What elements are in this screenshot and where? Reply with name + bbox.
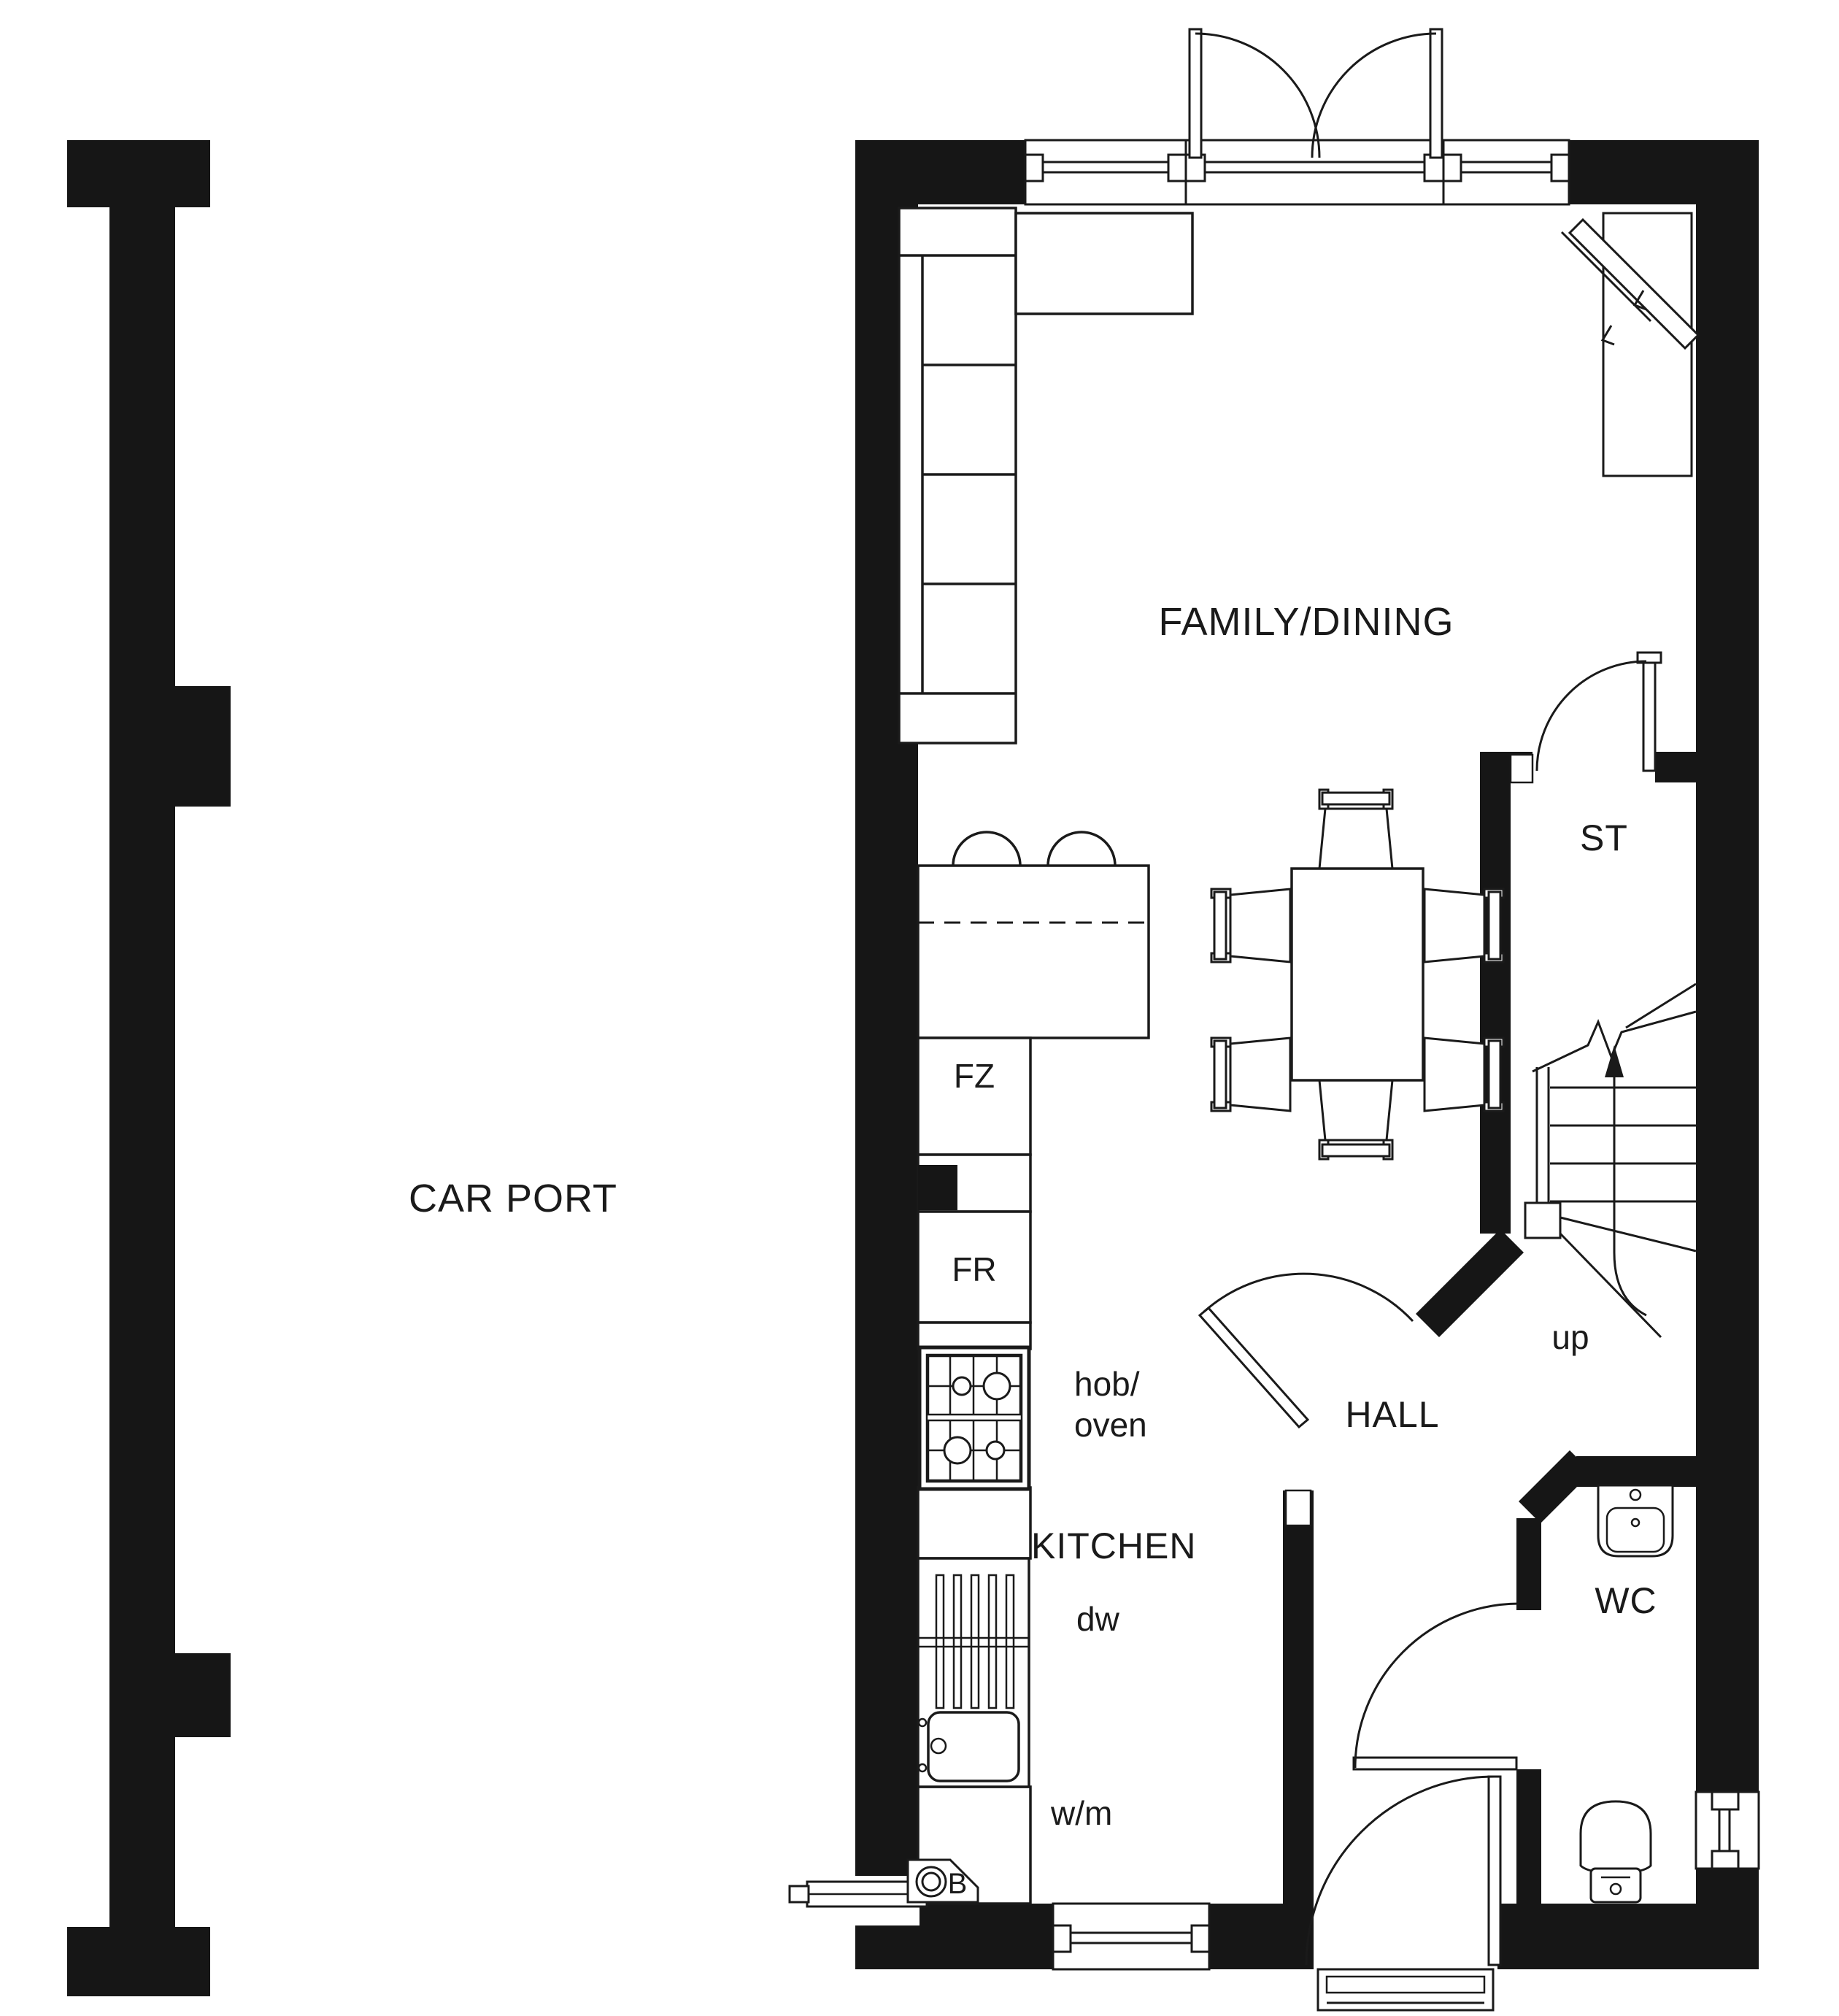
french-doors [1190,29,1442,158]
breakfast-bar [918,866,1149,1038]
stairs [1525,984,1696,1337]
counter-segment [918,1323,1030,1349]
burner [944,1437,971,1463]
wall-hall-angled [1416,1229,1524,1337]
labels: CAR PORT FAMILY/DINING KITCHEN HALL ST W… [409,600,1657,1900]
wall-wc-lower [1516,1769,1541,1904]
store-door [1537,653,1661,771]
toilet-bowl [1581,1801,1651,1873]
door-stop-hall [1286,1490,1311,1526]
stair-up-arrow-line [1614,1070,1646,1315]
wc-basin-inner [1607,1508,1664,1552]
sofa [899,208,1192,743]
wall-kitchen-pier-overlay [918,1165,957,1210]
sink-tap [919,1764,926,1771]
bar-stool [1048,832,1115,866]
desk [1562,213,1698,476]
dining-chair-bottom [1319,1080,1392,1159]
counter-segment [918,1488,1030,1558]
front-door [1306,1777,1500,2010]
dining-chair-top [1319,790,1392,869]
dining-chair-right-2 [1424,1038,1503,1111]
label-dishwasher: dw [1076,1600,1120,1638]
sink-tap [931,1739,946,1753]
hall-door-leaf [1200,1308,1308,1427]
door-stop-store [1511,755,1532,782]
hall-door-swing [1204,1274,1413,1321]
dining-table [1292,869,1423,1080]
front-door-swing [1306,1777,1495,1965]
freezer-unit [918,1038,1030,1155]
window-kitchen-bottom [1053,1904,1209,1969]
burner [984,1373,1010,1399]
wc-door [1354,1604,1519,1769]
label-boiler: B [948,1868,968,1900]
floor-plan-drawing: CAR PORT FAMILY/DINING KITCHEN HALL ST W… [0,0,1839,2016]
window-wc-right [1696,1792,1759,1869]
wall-wc-stub [1516,1518,1541,1610]
window-top-left [1025,140,1186,204]
stair-newel-post [1525,1203,1560,1238]
label-stairs-up: up [1551,1318,1589,1356]
french-door-leaf-right [1430,29,1442,158]
window-top-right [1443,140,1569,204]
wall-right-upper [1696,140,1759,1792]
wc-fixtures [1581,1485,1673,1902]
burner [987,1442,1004,1459]
room-label-car-port: CAR PORT [409,1177,617,1220]
label-hob-line2: oven [1074,1406,1147,1444]
wc-door-leaf [1354,1758,1516,1769]
dining-chair-left-2 [1211,1038,1290,1111]
room-label-family-dining: FAMILY/DINING [1158,600,1454,644]
room-label-store: ST [1580,817,1628,858]
floor-plan: CAR PORT FAMILY/DINING KITCHEN HALL ST W… [0,0,1839,2016]
french-door-opening [1186,140,1443,204]
dining-chair-left-1 [1211,889,1290,962]
french-door-leaf-left [1190,29,1201,158]
room-label-kitchen: KITCHEN [1031,1526,1196,1566]
sofa-chaise [1016,213,1192,314]
label-freezer: FZ [954,1057,995,1095]
label-fridge: FR [952,1250,996,1288]
sink-unit [918,1558,1029,1787]
front-door-leaf [1489,1777,1500,1965]
wall-right-lower [1696,1869,1759,1969]
wc-basin-tap [1632,1519,1639,1526]
label-hob-line1: hob/ [1074,1365,1140,1403]
burner [953,1377,971,1395]
boiler-dial-inner [922,1873,940,1890]
dining-chair-right-1 [1424,889,1503,962]
store-door-leaf [1643,660,1655,771]
carport-pier-lower [175,1653,231,1737]
wc-basin-tap [1630,1490,1641,1500]
wall-dining-stairs [1480,782,1511,1234]
toilet-flush-button [1611,1884,1621,1894]
carport-wall-bottom-cap [67,1927,210,1996]
hob-oven-unit [919,1347,1029,1489]
wc-door-swing [1355,1604,1519,1768]
label-washing-machine: w/m [1050,1794,1112,1832]
bar-stool [953,832,1020,866]
dining-set [1211,790,1503,1159]
carport-wall-left [109,140,175,1927]
wall-wc-top [1576,1456,1696,1487]
hob-panel-lower [928,1420,1020,1480]
room-label-hall: HALL [1345,1394,1439,1435]
store-door-swing [1537,661,1646,771]
hob-panel-upper [928,1356,1020,1415]
front-door-threshold-inner [1327,1977,1484,1993]
wall-kitchen-hall [1283,1490,1314,1969]
carport-walls [67,140,231,1996]
flue-end-cap [790,1886,809,1902]
wall-bottom-right [1497,1904,1696,1969]
sink-tap [919,1719,926,1726]
wall-store-top-right [1655,752,1696,782]
carport-wall-top-cap [67,140,210,207]
carport-pier-upper [175,686,231,807]
stair-winder-line [1560,1217,1696,1251]
room-label-wc: WC [1595,1580,1657,1621]
